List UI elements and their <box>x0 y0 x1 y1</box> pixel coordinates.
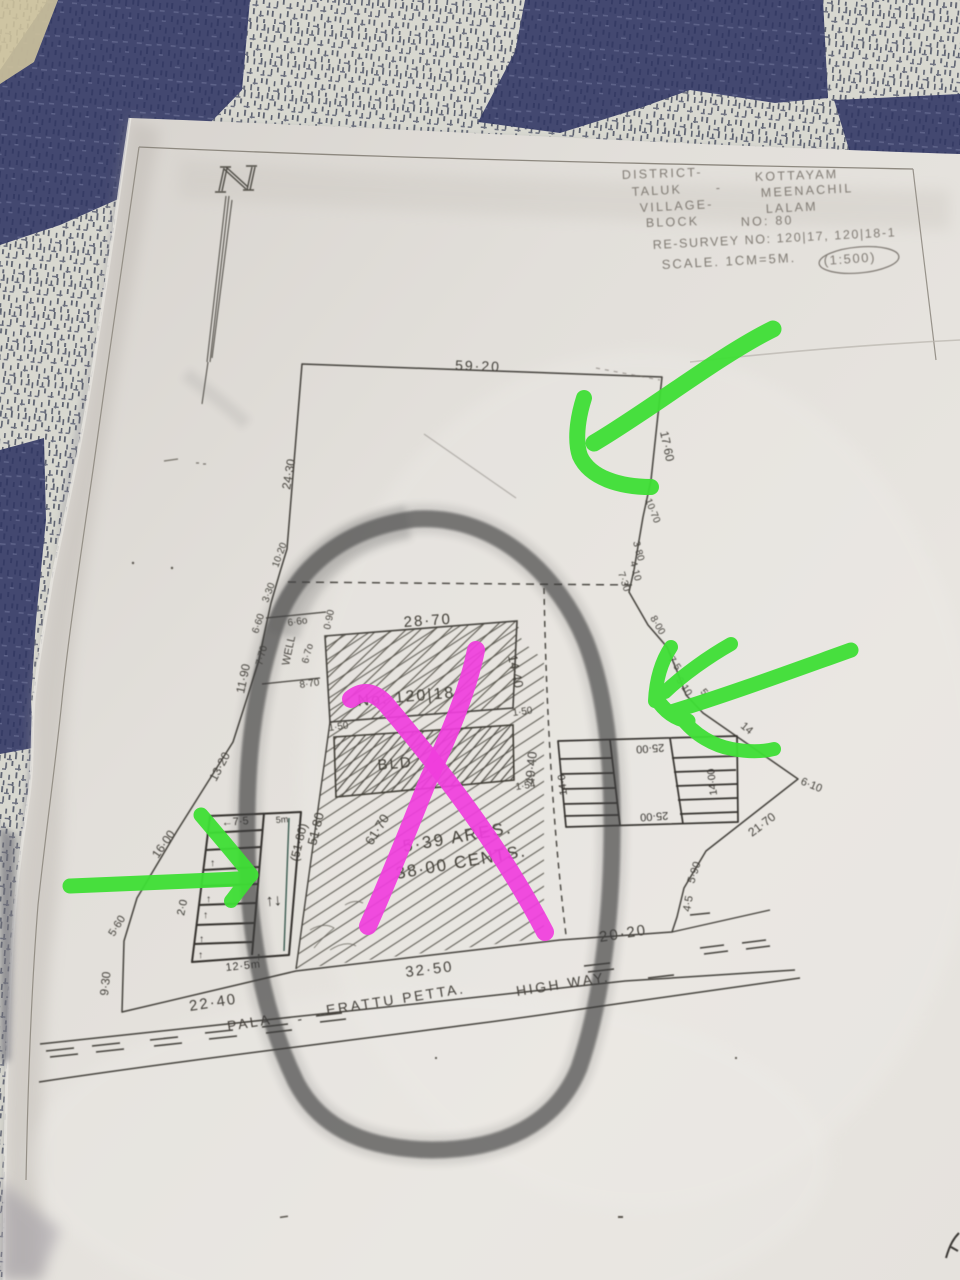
svg-text:14·0: 14·0 <box>556 774 570 796</box>
svg-text:TALUK: TALUK <box>631 182 682 199</box>
svg-text:DISTRICT-: DISTRICT- <box>622 165 703 182</box>
svg-text:-: - <box>715 181 722 195</box>
svg-text:25·00: 25·00 <box>640 809 669 823</box>
svg-text:↑↓: ↑↓ <box>265 892 282 910</box>
svg-text:BLD: BLD <box>377 754 414 774</box>
svg-text:28·70: 28·70 <box>403 611 452 631</box>
svg-text:↑: ↑ <box>198 950 203 961</box>
svg-text:↑: ↑ <box>199 934 204 945</box>
svg-text:↑: ↑ <box>206 894 211 905</box>
svg-text:↑: ↑ <box>203 910 208 921</box>
svg-text:59·20: 59·20 <box>455 357 501 375</box>
svg-text:9·30: 9·30 <box>97 971 113 997</box>
svg-text:5m: 5m <box>275 814 288 825</box>
svg-text:NO: 80: NO: 80 <box>741 213 794 229</box>
svg-text:KOTTAYAM: KOTTAYAM <box>755 167 839 184</box>
svg-text:25·00: 25·00 <box>636 741 665 755</box>
svg-text:↑: ↑ <box>210 858 215 869</box>
svg-text:BLOCK: BLOCK <box>646 214 700 230</box>
